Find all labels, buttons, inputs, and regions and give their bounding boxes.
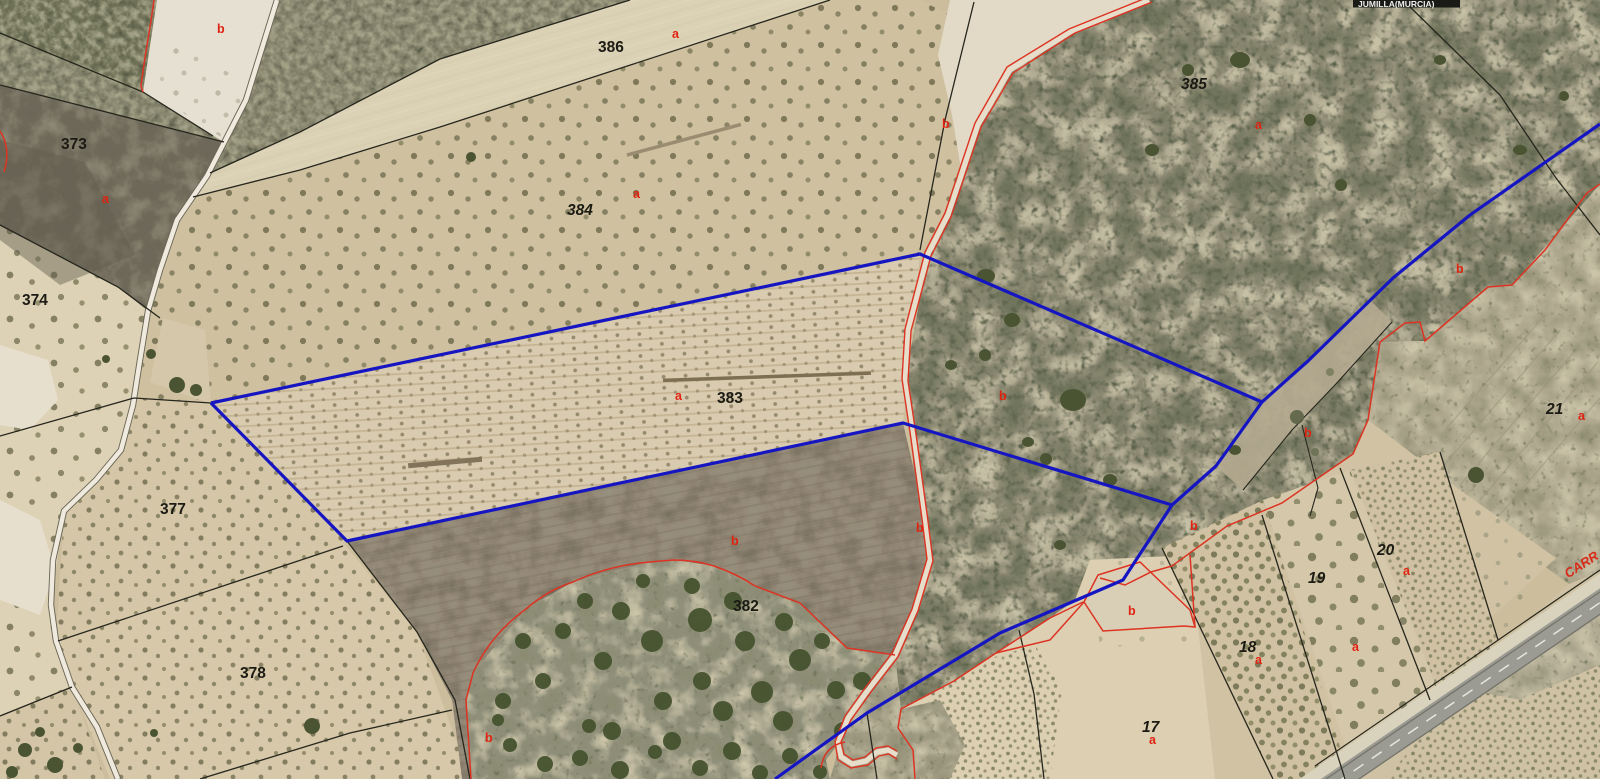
svg-text:a: a — [1255, 653, 1263, 667]
svg-text:20: 20 — [1376, 542, 1395, 559]
svg-text:b: b — [731, 534, 739, 548]
svg-text:373: 373 — [61, 136, 87, 153]
svg-text:b: b — [1304, 426, 1312, 440]
svg-text:21: 21 — [1545, 401, 1563, 418]
svg-text:b: b — [1190, 519, 1198, 533]
svg-text:384: 384 — [567, 202, 593, 219]
svg-text:a: a — [672, 27, 680, 41]
svg-text:a: a — [1578, 409, 1586, 423]
svg-text:385: 385 — [1181, 76, 1207, 93]
svg-text:a: a — [1149, 733, 1157, 747]
svg-text:a: a — [633, 187, 641, 201]
svg-text:b: b — [942, 117, 950, 131]
svg-text:b: b — [999, 389, 1007, 403]
svg-text:b: b — [1128, 604, 1136, 618]
svg-text:b: b — [916, 521, 924, 535]
svg-text:a: a — [102, 192, 110, 206]
svg-text:383: 383 — [717, 390, 743, 407]
svg-text:377: 377 — [160, 501, 186, 518]
svg-text:a: a — [675, 389, 683, 403]
svg-text:374: 374 — [22, 292, 48, 309]
svg-text:18: 18 — [1239, 639, 1257, 656]
svg-text:b: b — [485, 731, 493, 745]
svg-text:386: 386 — [598, 39, 624, 56]
svg-text:a: a — [1403, 564, 1411, 578]
svg-text:a: a — [1352, 640, 1360, 654]
svg-text:JUMILLA(MURCIA): JUMILLA(MURCIA) — [1358, 0, 1435, 9]
svg-text:19: 19 — [1308, 570, 1326, 587]
svg-text:b: b — [1456, 262, 1464, 276]
svg-text:a: a — [1255, 118, 1263, 132]
svg-text:382: 382 — [733, 598, 759, 615]
svg-text:b: b — [217, 22, 225, 36]
svg-text:378: 378 — [240, 665, 266, 682]
